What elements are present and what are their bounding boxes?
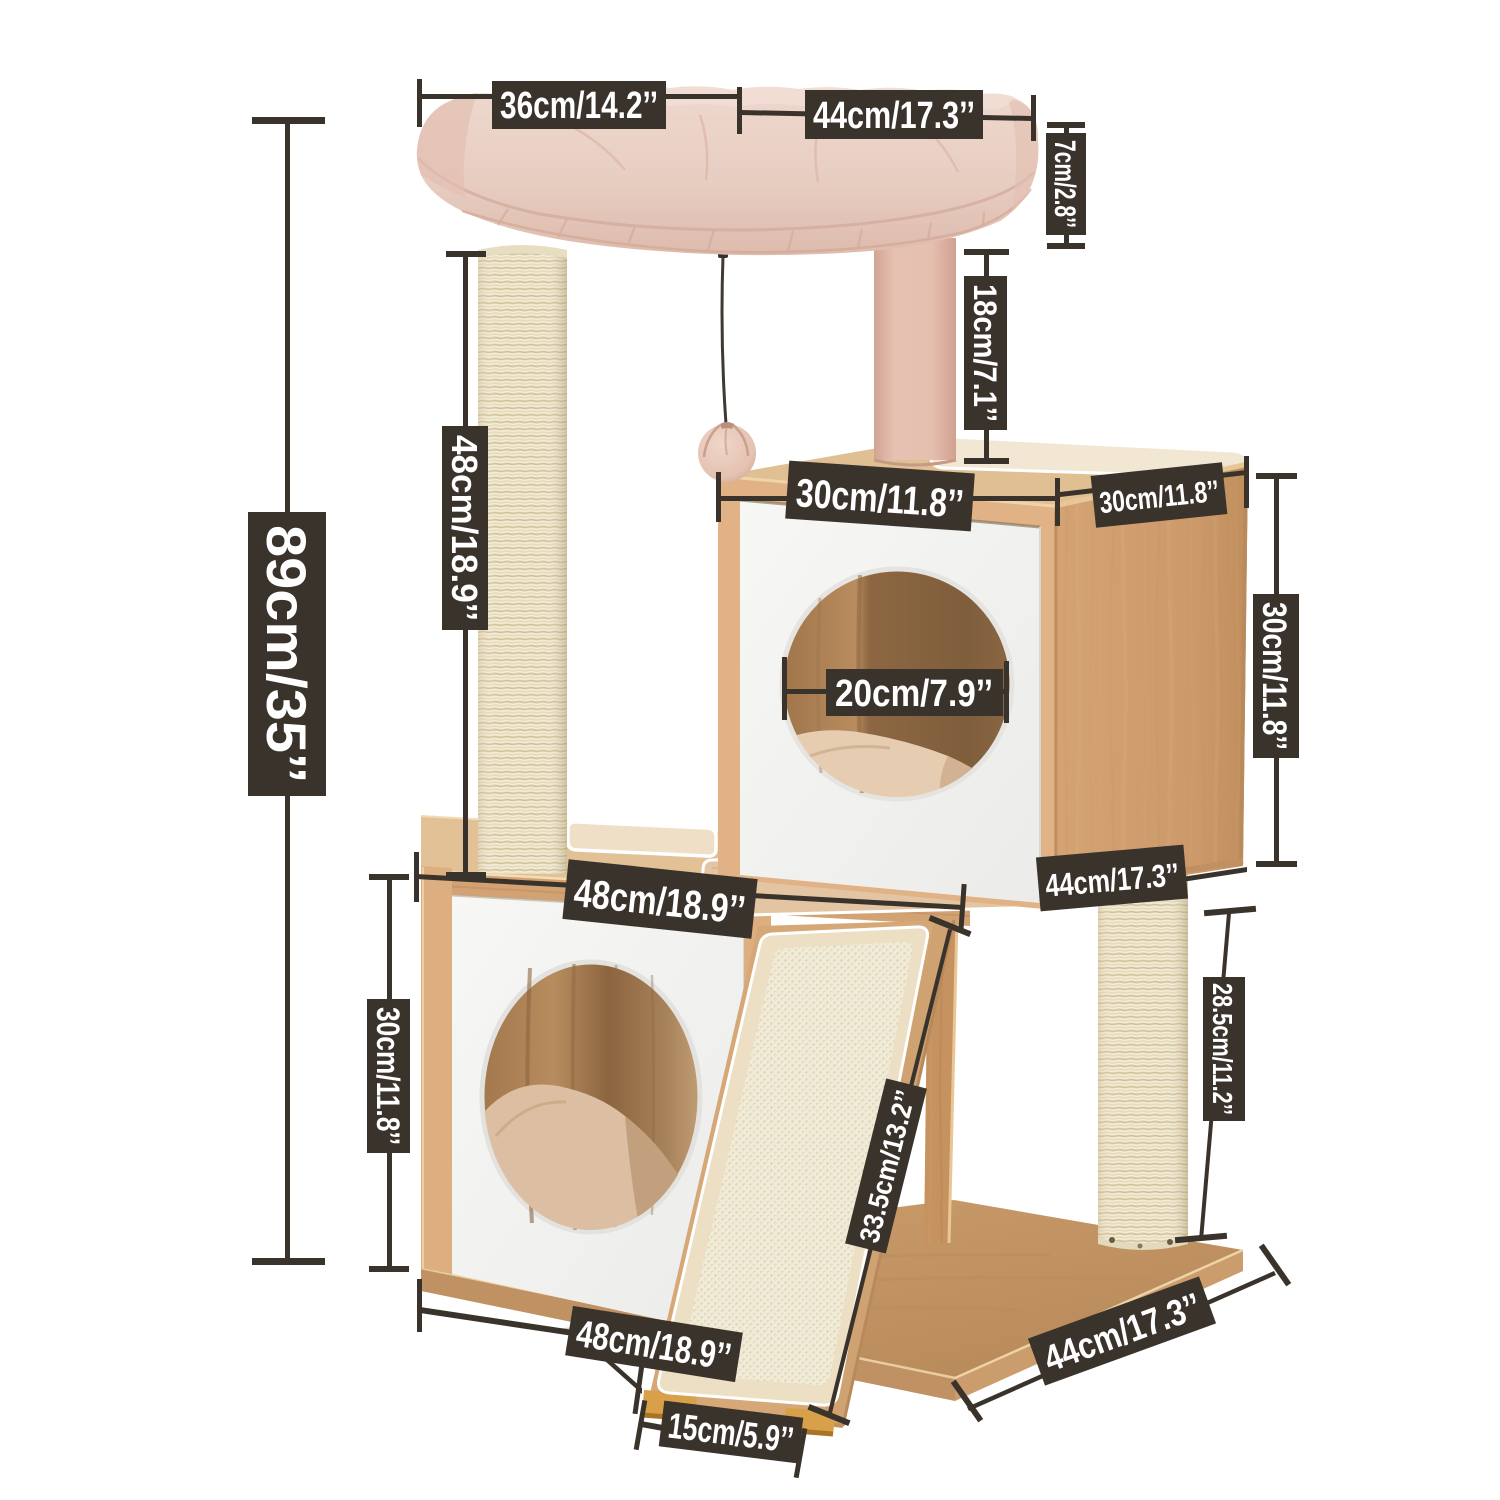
svg-text:7cm/2.8’’: 7cm/2.8’’ <box>1048 140 1081 228</box>
svg-text:89cm/35’’: 89cm/35’’ <box>255 525 318 783</box>
svg-text:36cm/14.2’’: 36cm/14.2’’ <box>500 85 658 127</box>
svg-text:20cm/7.9’’: 20cm/7.9’’ <box>835 673 993 715</box>
svg-text:30cm/11.8’’: 30cm/11.8’’ <box>370 1007 406 1145</box>
svg-text:18cm/7.1’’: 18cm/7.1’’ <box>967 284 1003 422</box>
svg-text:44cm/17.3’’: 44cm/17.3’’ <box>813 95 975 137</box>
svg-text:48cm/18.9’’: 48cm/18.9’’ <box>444 435 485 621</box>
svg-text:30cm/11.8’’: 30cm/11.8’’ <box>1255 602 1293 750</box>
svg-text:28.5cm/11.2’’: 28.5cm/11.2’’ <box>1207 983 1238 1115</box>
